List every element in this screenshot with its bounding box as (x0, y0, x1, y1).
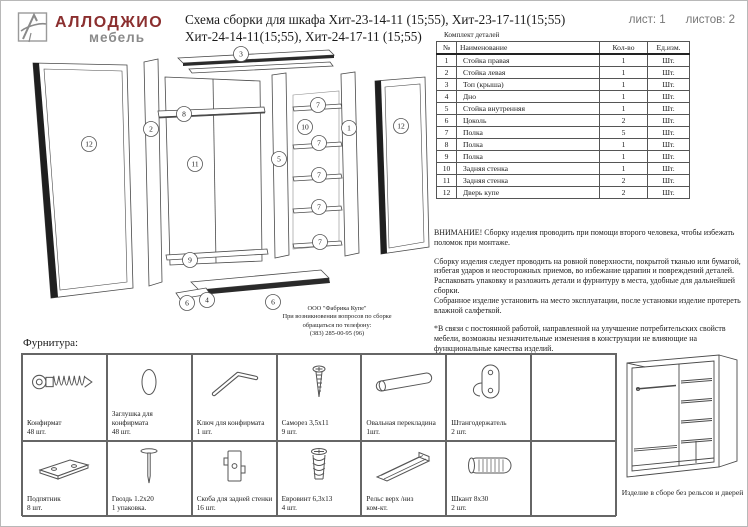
hw-qty: 9 шт. (282, 428, 359, 437)
cell: 12 (437, 187, 457, 199)
assembly-sheet: АЛЛОДЖИО мебель Схема сборки для шкафа Х… (0, 0, 748, 527)
part-stand-left (144, 59, 162, 286)
col-qty: Кол-во (600, 42, 648, 55)
parts-table: № Наименование Кол-во Ед.изм. 1Стойка пр… (436, 41, 690, 199)
callout-7-5: 7 (313, 235, 328, 250)
col-name: Наименование (457, 42, 600, 55)
hardware-caption: Фурнитура: (23, 337, 78, 349)
table-row: 12Дверь купе2Шт. (437, 187, 690, 199)
svg-text:6: 6 (185, 299, 189, 308)
rail-profile-icon (362, 446, 445, 486)
hw-cell-confirmat: Конфирмат48 шт. (22, 354, 107, 441)
hardware-grid: Конфирмат48 шт. Заглушка для конфирмата4… (21, 353, 617, 516)
assembly-notes: ВНИМАНИЕ! Сборку изделия проводить при п… (434, 228, 747, 354)
svg-text:7: 7 (317, 171, 321, 180)
hw-qty: 8 шт. (27, 504, 104, 513)
assembled-wardrobe-sketch (619, 349, 747, 483)
note-surface: Сборку изделия следует проводить на ровн… (434, 257, 747, 277)
hw-qty: 2 шт. (451, 428, 528, 437)
part-door-right (375, 77, 429, 254)
sheets-total: листов: 2 (686, 14, 735, 26)
hw-cell-euro-screw: Евровинт 6,3х134 шт. (277, 441, 362, 517)
svg-text:1: 1 (347, 124, 351, 133)
hw-qty: 1 упаковка. (112, 504, 189, 513)
cell: Стойка правая (457, 54, 600, 67)
sheet-info: лист: 1 листов: 2 (629, 14, 735, 26)
warning-text: ВНИМАНИЕ! Сборку изделия проводить при п… (434, 228, 747, 248)
cell: Полка (457, 127, 600, 139)
callout-4: 4 (200, 293, 215, 308)
hw-name: Скоба для задней стенки (197, 495, 274, 504)
hw-name: Ключ для конфирмата (197, 419, 274, 428)
hw-cell-empty-bottom (531, 441, 616, 517)
svg-text:5: 5 (277, 155, 281, 164)
cell: 2 (600, 187, 648, 199)
table-row: 1Стойка правая1Шт. (437, 54, 690, 67)
table-row: 10Задняя стенка1Шт. (437, 163, 690, 175)
cell: Шт. (648, 175, 690, 187)
callout-8: 8 (177, 107, 192, 122)
small-screw-icon (278, 359, 361, 405)
cell: 7 (437, 127, 457, 139)
hw-cell-rail: Рельс верх /низком-кт. (361, 441, 446, 517)
cell: Шт. (648, 151, 690, 163)
callout-2: 2 (144, 122, 159, 137)
hw-name: Заглушка для конфирмата (112, 410, 189, 428)
cell: 1 (600, 103, 648, 115)
callout-6-left: 6 (180, 296, 195, 311)
hw-qty: 48 шт. (112, 428, 189, 437)
cell: Дверь купе (457, 187, 600, 199)
callout-12-right: 12 (394, 119, 409, 134)
cell: 1 (600, 91, 648, 103)
cell: Шт. (648, 163, 690, 175)
callout-7-3: 7 (312, 168, 327, 183)
cell: Полка (457, 139, 600, 151)
hw-cell-empty-top (531, 354, 616, 441)
note-place: Собранное изделие установить на место эк… (434, 296, 747, 316)
col-unit: Ед.изм. (648, 42, 690, 55)
callout-5: 5 (272, 152, 287, 167)
table-row: 3Топ (крыша)1Шт. (437, 79, 690, 91)
foot-pad-icon (23, 446, 106, 486)
cell: 6 (437, 115, 457, 127)
svg-text:7: 7 (316, 101, 320, 110)
euro-screw-icon (278, 446, 361, 486)
callout-11: 11 (188, 157, 203, 172)
hw-cell-foot-pad: Подпятник8 шт. (22, 441, 107, 517)
cell: Шт. (648, 67, 690, 79)
table-row: 9Полка1Шт. (437, 151, 690, 163)
svg-text:3: 3 (239, 50, 243, 59)
hw-name: Овальная перекладина (366, 419, 443, 428)
cell: Полка (457, 151, 600, 163)
hw-name: Подпятник (27, 495, 104, 504)
hex-key-icon (193, 359, 276, 405)
cell: 1 (600, 151, 648, 163)
cell: Шт. (648, 127, 690, 139)
callout-3: 3 (234, 47, 249, 62)
cell: Топ (крыша) (457, 79, 600, 91)
part-door-left (33, 63, 133, 298)
cell: 10 (437, 163, 457, 175)
part-stand-right (341, 72, 359, 256)
callout-7-4: 7 (312, 200, 327, 215)
callout-10: 10 (298, 120, 313, 135)
cell: Стойка левая (457, 67, 600, 79)
cell: Шт. (648, 139, 690, 151)
cell: 2 (437, 67, 457, 79)
hw-cell-nail: Гвоздь 1.2х201 упаковка. (107, 441, 192, 517)
svg-text:7: 7 (317, 203, 321, 212)
hw-qty: 16 шт. (197, 504, 274, 513)
svg-text:10: 10 (301, 123, 309, 132)
hw-name: Шкант 8х30 (451, 495, 528, 504)
table-row: 7Полка5Шт. (437, 127, 690, 139)
svg-text:8: 8 (182, 110, 186, 119)
cell: 1 (600, 139, 648, 151)
hw-name: Рельс верх /низ (366, 495, 443, 504)
table-row: 2Стойка левая1Шт. (437, 67, 690, 79)
dowel-icon (447, 446, 530, 486)
confirmat-screw-icon (23, 359, 106, 405)
sheet-number: лист: 1 (629, 14, 666, 26)
svg-text:7: 7 (318, 238, 322, 247)
cell: 5 (600, 127, 648, 139)
cell: Шт. (648, 103, 690, 115)
cell: 1 (600, 67, 648, 79)
cell: 2 (600, 175, 648, 187)
cell: Задняя стенка (457, 163, 600, 175)
hw-cell-screw: Саморез 3,5х119 шт. (277, 354, 362, 441)
hw-name: Евровинт 6,3х13 (282, 495, 359, 504)
cell: Шт. (648, 115, 690, 127)
cell: 1 (437, 54, 457, 67)
svg-text:6: 6 (271, 298, 275, 307)
svg-text:12: 12 (85, 140, 93, 149)
cell: Шт. (648, 187, 690, 199)
hw-qty: 48 шт. (27, 428, 104, 437)
callout-7-2: 7 (312, 136, 327, 151)
assembled-wardrobe-caption: Изделие в сборе без рельсов и дверей (616, 488, 748, 497)
title-line-1: Схема сборки для шкафа Хит-23-14-11 (15;… (185, 11, 585, 28)
cell: Дно (457, 91, 600, 103)
hw-name: Гвоздь 1.2х20 (112, 495, 189, 504)
svg-text:2: 2 (149, 125, 153, 134)
hw-qty: 2 шт. (451, 504, 528, 513)
note-unpack: Распаковать упаковку и разложить детали … (434, 276, 747, 296)
part-back-panel-center (165, 77, 262, 265)
cell: 1 (600, 54, 648, 67)
cell: 2 (600, 115, 648, 127)
hw-qty: 1 шт. (197, 428, 274, 437)
cell: 1 (600, 163, 648, 175)
hw-cell-rod-holder: Штангодержатель2 шт. (446, 354, 531, 441)
callout-1: 1 (342, 121, 357, 136)
table-row: 11Задняя стенка2Шт. (437, 175, 690, 187)
cell: Шт. (648, 79, 690, 91)
svg-text:9: 9 (188, 256, 192, 265)
assembly-diagram: 12 2 3 8 11 9 5 10 7 7 7 7 7 1 12 6 4 6 (21, 41, 431, 341)
hw-cell-oval-rod: Овальная перекладина1шт. (361, 354, 446, 441)
cell: Цоколь (457, 115, 600, 127)
table-row: 8Полка1Шт. (437, 139, 690, 151)
hw-cell-bracket: Скоба для задней стенки16 шт. (192, 441, 277, 517)
svg-text:4: 4 (205, 296, 209, 305)
hw-cell-hex-key: Ключ для конфирмата1 шт. (192, 354, 277, 441)
cap-icon (108, 359, 191, 405)
table-row: 5Стойка внутренняя1Шт. (437, 103, 690, 115)
callout-9: 9 (183, 253, 198, 268)
hw-qty: 4 шт. (282, 504, 359, 513)
part-bottom-and-plinth (176, 270, 330, 299)
cell: Шт. (648, 54, 690, 67)
hw-cell-cap: Заглушка для конфирмата48 шт. (107, 354, 192, 441)
back-wall-bracket-icon (193, 446, 276, 486)
cell: 1 (600, 79, 648, 91)
hw-cell-dowel: Шкант 8х302 шт. (446, 441, 531, 517)
svg-text:11: 11 (191, 160, 198, 169)
cell: 5 (437, 103, 457, 115)
svg-text:7: 7 (317, 139, 321, 148)
cell: Задняя стенка (457, 175, 600, 187)
nail-icon (108, 446, 191, 486)
cell: 3 (437, 79, 457, 91)
part-top (178, 50, 334, 73)
hw-name: Саморез 3,5х11 (282, 419, 359, 428)
cell: Стойка внутренняя (457, 103, 600, 115)
hw-name: Штангодержатель (451, 419, 528, 428)
callout-6-right: 6 (266, 295, 281, 310)
cell: 8 (437, 139, 457, 151)
cell: Шт. (648, 91, 690, 103)
svg-text:12: 12 (397, 122, 405, 131)
table-row: 6Цоколь2Шт. (437, 115, 690, 127)
rod-holder-icon (447, 359, 530, 405)
callout-12-left: 12 (82, 137, 97, 152)
oval-rod-icon (362, 359, 445, 405)
table-row: 4Дно1Шт. (437, 91, 690, 103)
parts-table-header-row: № Наименование Кол-во Ед.изм. (437, 42, 690, 55)
callout-7-1: 7 (311, 98, 326, 113)
hw-name: Конфирмат (27, 419, 104, 428)
col-number: № (437, 42, 457, 55)
hw-qty: ком-кт. (366, 504, 443, 513)
cell: 4 (437, 91, 457, 103)
cell: 9 (437, 151, 457, 163)
hw-qty: 1шт. (366, 428, 443, 437)
cell: 11 (437, 175, 457, 187)
parts-table-caption: Комплект деталей (444, 31, 499, 39)
